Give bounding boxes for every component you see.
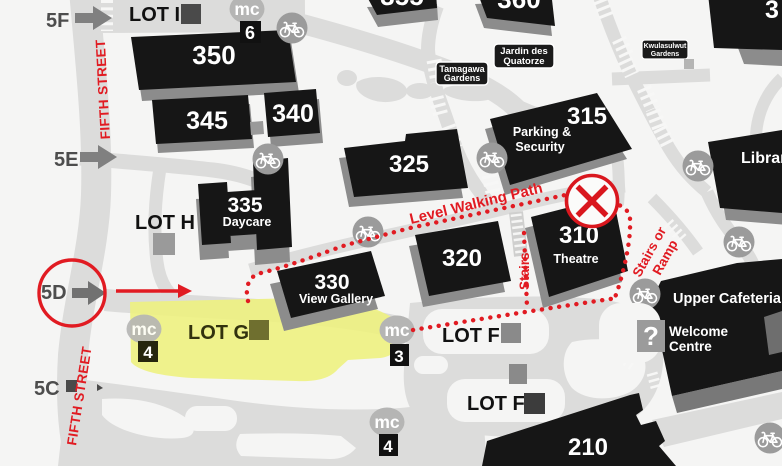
svg-text:LOT I: LOT I [129,4,180,26]
svg-text:5F: 5F [46,10,69,32]
svg-text:3: 3 [765,0,779,24]
svg-text:LOT H: LOT H [135,212,195,234]
svg-text:5D: 5D [41,282,67,304]
svg-text:LOT G: LOT G [188,322,249,344]
svg-text:335: 335 [227,194,262,217]
svg-text:4: 4 [383,437,393,456]
svg-text:Stairs: Stairs [517,252,532,290]
svg-text:Gardens: Gardens [651,51,680,58]
svg-text:315: 315 [567,103,607,130]
svg-text:Kwulasulwut: Kwulasulwut [644,43,687,50]
svg-text:4: 4 [143,343,153,362]
svg-text:6: 6 [245,23,255,43]
svg-text:355: 355 [380,0,423,11]
svg-text:Library: Library [741,150,782,167]
svg-text:360: 360 [497,0,540,14]
svg-text:330: 330 [314,271,349,294]
svg-text:Welcome: Welcome [669,324,729,339]
svg-text:340: 340 [272,100,314,128]
svg-text:Parking &: Parking & [513,125,571,139]
svg-text:LOT F: LOT F [467,393,525,415]
svg-text:325: 325 [389,151,429,178]
svg-text:View Gallery: View Gallery [299,292,373,306]
svg-text:345: 345 [186,107,228,135]
svg-text:?: ? [643,321,659,351]
svg-text:5C: 5C [34,378,60,400]
svg-text:LOT F: LOT F [442,325,500,347]
svg-text:Quatorze: Quatorze [503,56,544,67]
svg-text:5E: 5E [54,149,78,171]
svg-text:3: 3 [394,347,403,366]
svg-text:210: 210 [568,434,608,461]
svg-text:Daycare: Daycare [223,215,272,229]
svg-text:Theatre: Theatre [553,252,598,266]
svg-text:Upper Cafeteria: Upper Cafeteria [673,291,782,307]
svg-text:320: 320 [442,245,482,272]
svg-text:Gardens: Gardens [444,73,481,83]
svg-text:Security: Security [515,140,564,154]
svg-text:350: 350 [192,40,235,70]
svg-text:Centre: Centre [669,339,712,354]
